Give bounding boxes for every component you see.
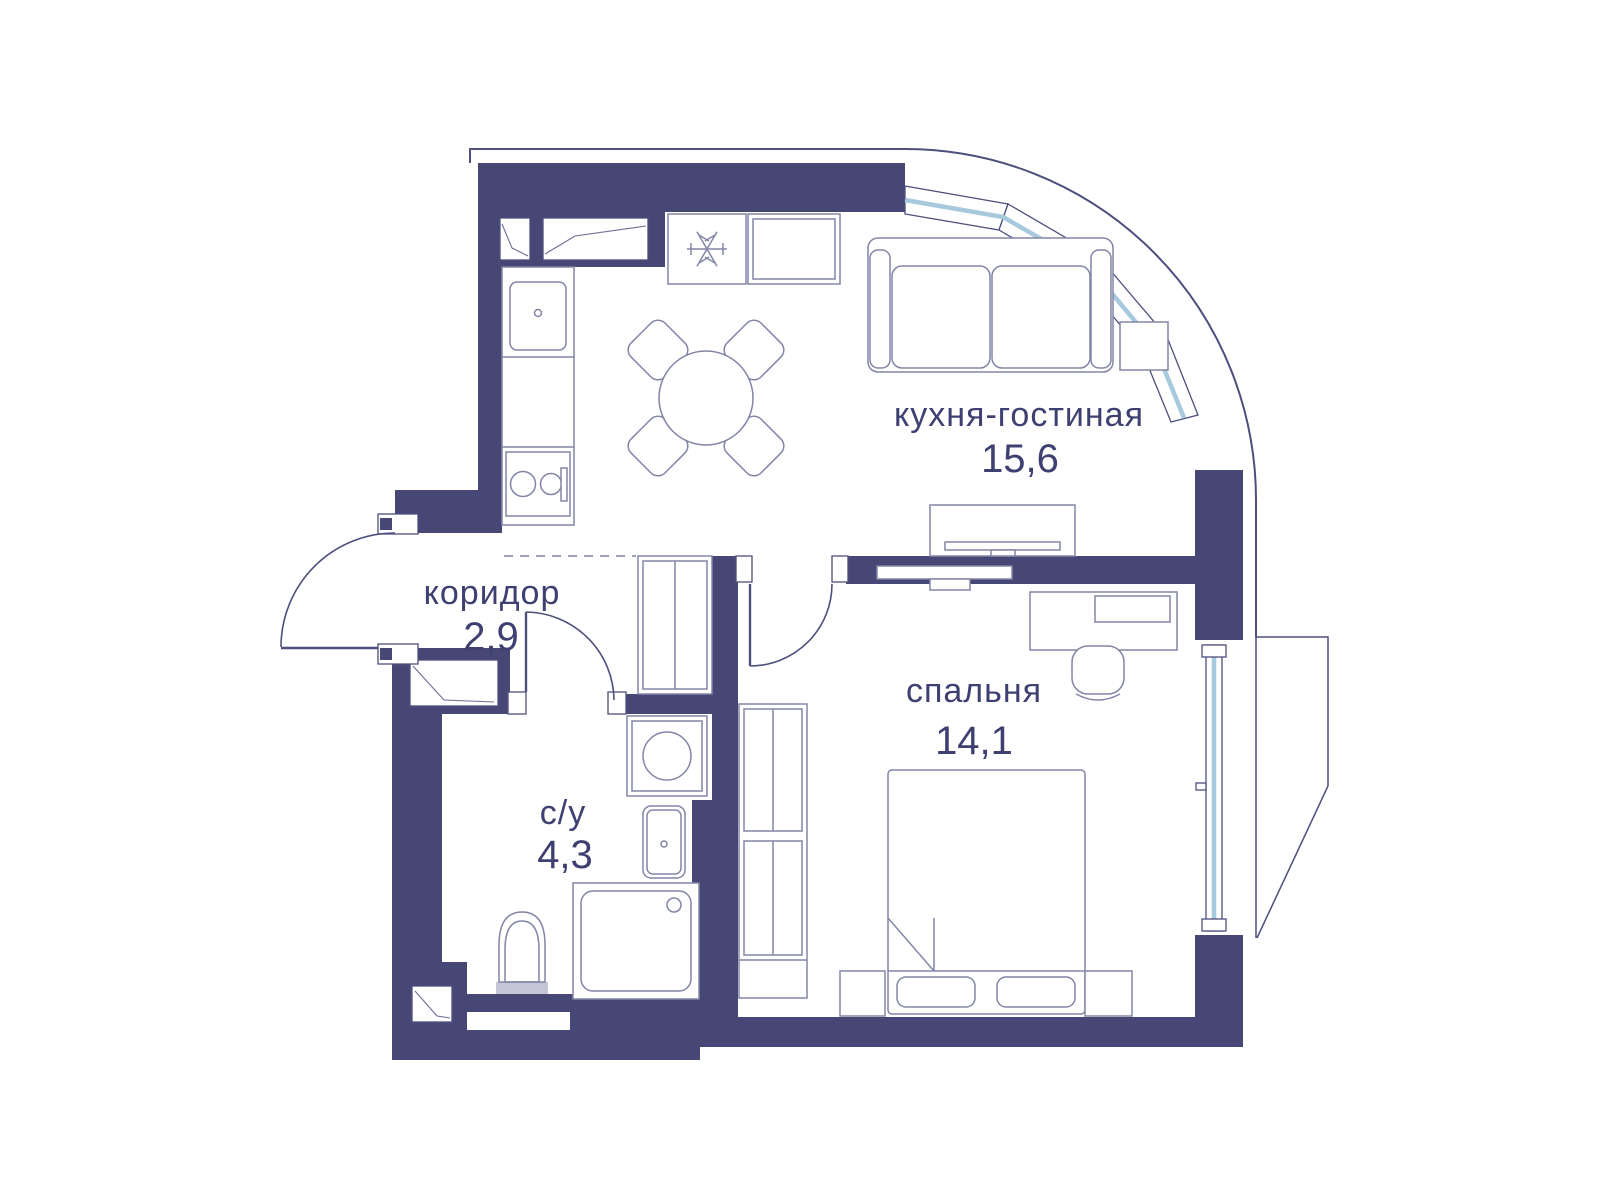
doors [281, 514, 848, 714]
room-label-bathroom: с/у [540, 794, 586, 832]
nightstand [840, 971, 885, 1016]
bedroom-tv-bracket [930, 579, 970, 590]
desk-chair [1072, 646, 1124, 694]
wall-kitchen-west [478, 163, 502, 493]
washing-machine [627, 716, 707, 796]
wall-under-shower [570, 997, 700, 1060]
door-frame [608, 692, 626, 714]
door-frame [832, 556, 848, 582]
bedroom-furniture [739, 566, 1177, 1016]
sofa-armrest [1091, 250, 1111, 368]
room-label-kitchen-living: кухня-гостиная [894, 396, 1144, 434]
sofa-cushion [992, 266, 1090, 368]
bathroom-sink [643, 806, 685, 878]
wall-bath-north-right [618, 694, 712, 714]
wall-bath-south [442, 994, 575, 1012]
door-frame [736, 556, 752, 582]
dining-table [659, 351, 753, 445]
vent-shaft-icon [543, 218, 648, 260]
vent-shaft-icon [500, 218, 530, 260]
side-table [1120, 322, 1168, 370]
balcony-outline [1256, 637, 1328, 938]
bedroom-door-arc [750, 584, 832, 666]
tv-icon [945, 542, 1060, 550]
floor-plan-svg: кухня-гостиная 15,6 спальня 14,1 коридор… [0, 0, 1600, 1200]
pillow [997, 977, 1075, 1007]
window-cap [1202, 645, 1226, 657]
door-frame [508, 692, 526, 714]
door-frame-tick [380, 648, 392, 660]
bathroom-fixtures [496, 716, 707, 999]
bedroom-window [1196, 645, 1226, 931]
wall-bedroom-west [712, 556, 738, 1017]
door-frame-tick [380, 518, 392, 530]
window-handle-icon [1196, 783, 1206, 790]
wall-top [478, 163, 905, 212]
toilet [499, 912, 545, 982]
bathroom-door-arc [526, 612, 614, 700]
wall-bottom-right [700, 1017, 1243, 1047]
room-label-bedroom: спальня [906, 672, 1042, 710]
wall-east-top [1195, 470, 1243, 640]
floor-plan-page: кухня-гостиная 15,6 спальня 14,1 коридор… [0, 0, 1600, 1200]
vent-shaft-icon [410, 660, 498, 706]
vent-shaft-icon [412, 986, 452, 1022]
window-cap [1202, 919, 1226, 931]
room-label-corridor: коридор [424, 574, 561, 612]
corridor-furniture [638, 556, 712, 694]
entry-door-arc [281, 533, 395, 647]
toilet-tank [496, 982, 548, 994]
kitchen-cabinet [748, 214, 840, 284]
bedroom-tv-icon [877, 566, 1012, 579]
desk [1030, 592, 1177, 650]
room-area-kitchen-living: 15,6 [981, 437, 1059, 481]
sofa-armrest [870, 250, 890, 368]
sofa-cushion [892, 266, 990, 368]
stove-handle [561, 468, 567, 501]
facade-line-top [470, 149, 905, 163]
room-area-bedroom: 14,1 [935, 719, 1013, 763]
tv-base [991, 550, 1015, 556]
room-area-bathroom: 4,3 [537, 833, 593, 877]
pillow [897, 977, 975, 1007]
desk-chair-back [1076, 694, 1120, 700]
nightstand [1085, 971, 1132, 1016]
room-area-corridor: 2,9 [463, 615, 519, 659]
